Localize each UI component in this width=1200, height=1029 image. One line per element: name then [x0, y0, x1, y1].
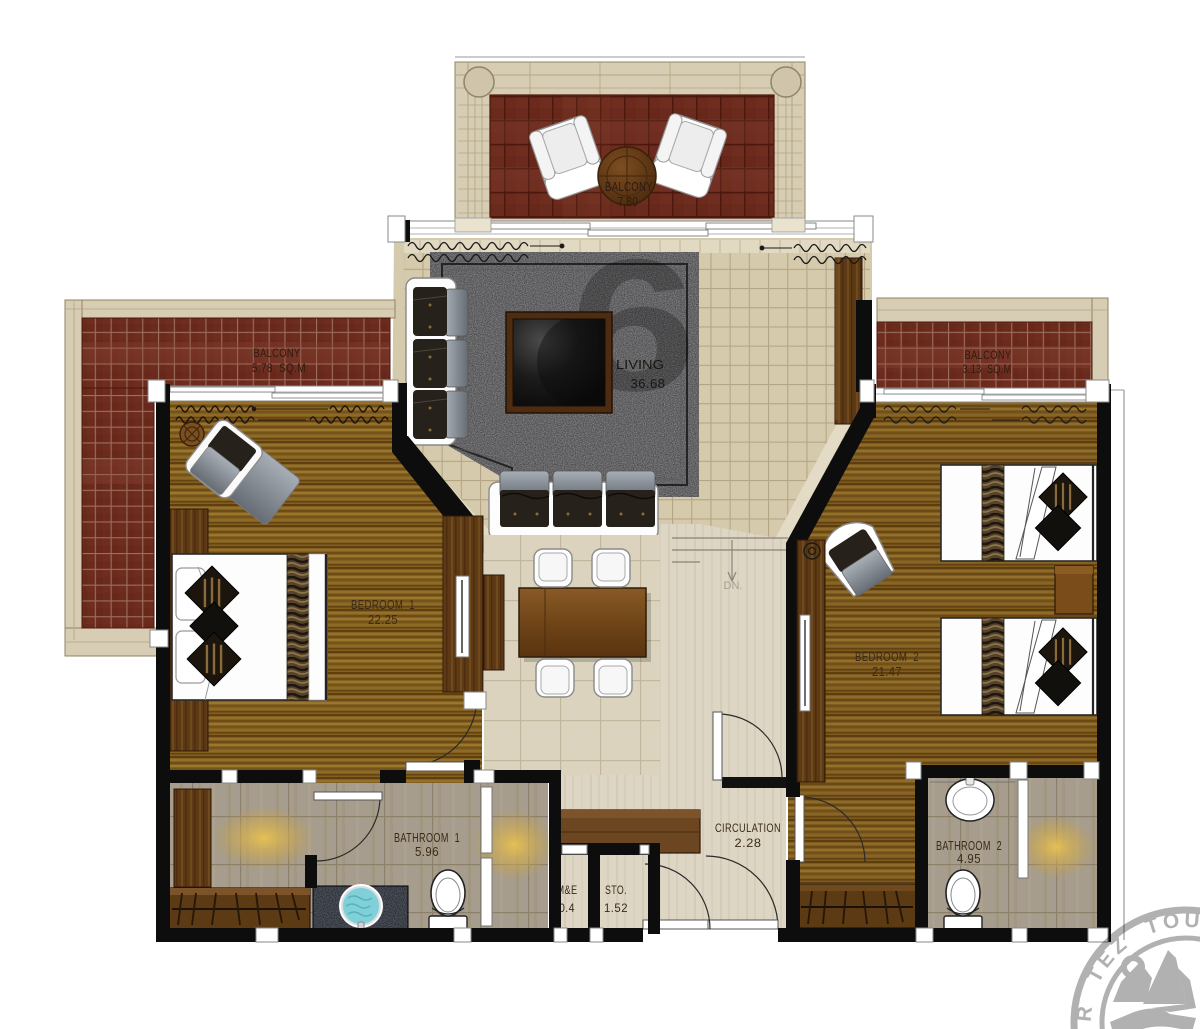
svg-text:BATHROOM 2: BATHROOM 2	[936, 839, 1002, 853]
svg-text:3.13 SQ.M: 3.13 SQ.M	[963, 364, 1012, 376]
svg-text:4.95: 4.95	[957, 852, 981, 866]
svg-text:BALCONY: BALCONY	[254, 346, 301, 360]
svg-text:DN.: DN.	[724, 580, 743, 592]
svg-text:7.80: 7.80	[618, 194, 638, 209]
svg-text:5.78 SQ.M: 5.78 SQ.M	[252, 361, 306, 375]
svg-text:BALCONY: BALCONY	[965, 350, 1012, 362]
svg-text:BATHROOM 1: BATHROOM 1	[394, 831, 460, 845]
svg-text:21.47: 21.47	[872, 665, 902, 679]
svg-text:5.96: 5.96	[415, 845, 439, 859]
svg-text:BALCONY: BALCONY	[605, 179, 653, 194]
svg-text:LIVING: LIVING	[616, 357, 664, 372]
svg-text:BEDROOM 1: BEDROOM 1	[351, 598, 415, 612]
svg-text:36.68: 36.68	[630, 376, 665, 391]
svg-text:BEDROOM 2: BEDROOM 2	[855, 650, 919, 664]
svg-text:STO.: STO.	[605, 885, 627, 897]
svg-text:2.28: 2.28	[735, 836, 762, 850]
svg-text:CIRCULATION: CIRCULATION	[715, 821, 781, 835]
svg-text:22.25: 22.25	[368, 613, 398, 627]
svg-text:0.4: 0.4	[559, 903, 575, 915]
svg-text:1.52: 1.52	[604, 903, 628, 915]
